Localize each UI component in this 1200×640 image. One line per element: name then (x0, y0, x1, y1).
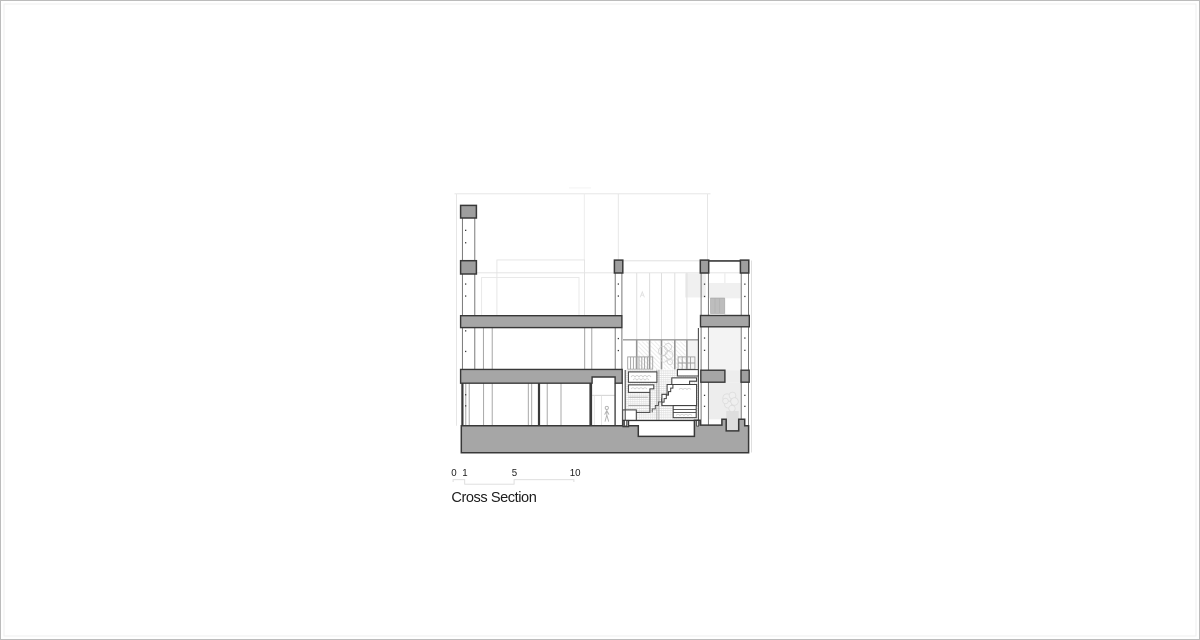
svg-text:0: 0 (451, 468, 457, 479)
svg-text:5: 5 (512, 468, 517, 479)
svg-text:1: 1 (462, 468, 467, 479)
svg-text:Cross Section: Cross Section (451, 490, 536, 506)
svg-text:10: 10 (570, 468, 581, 479)
